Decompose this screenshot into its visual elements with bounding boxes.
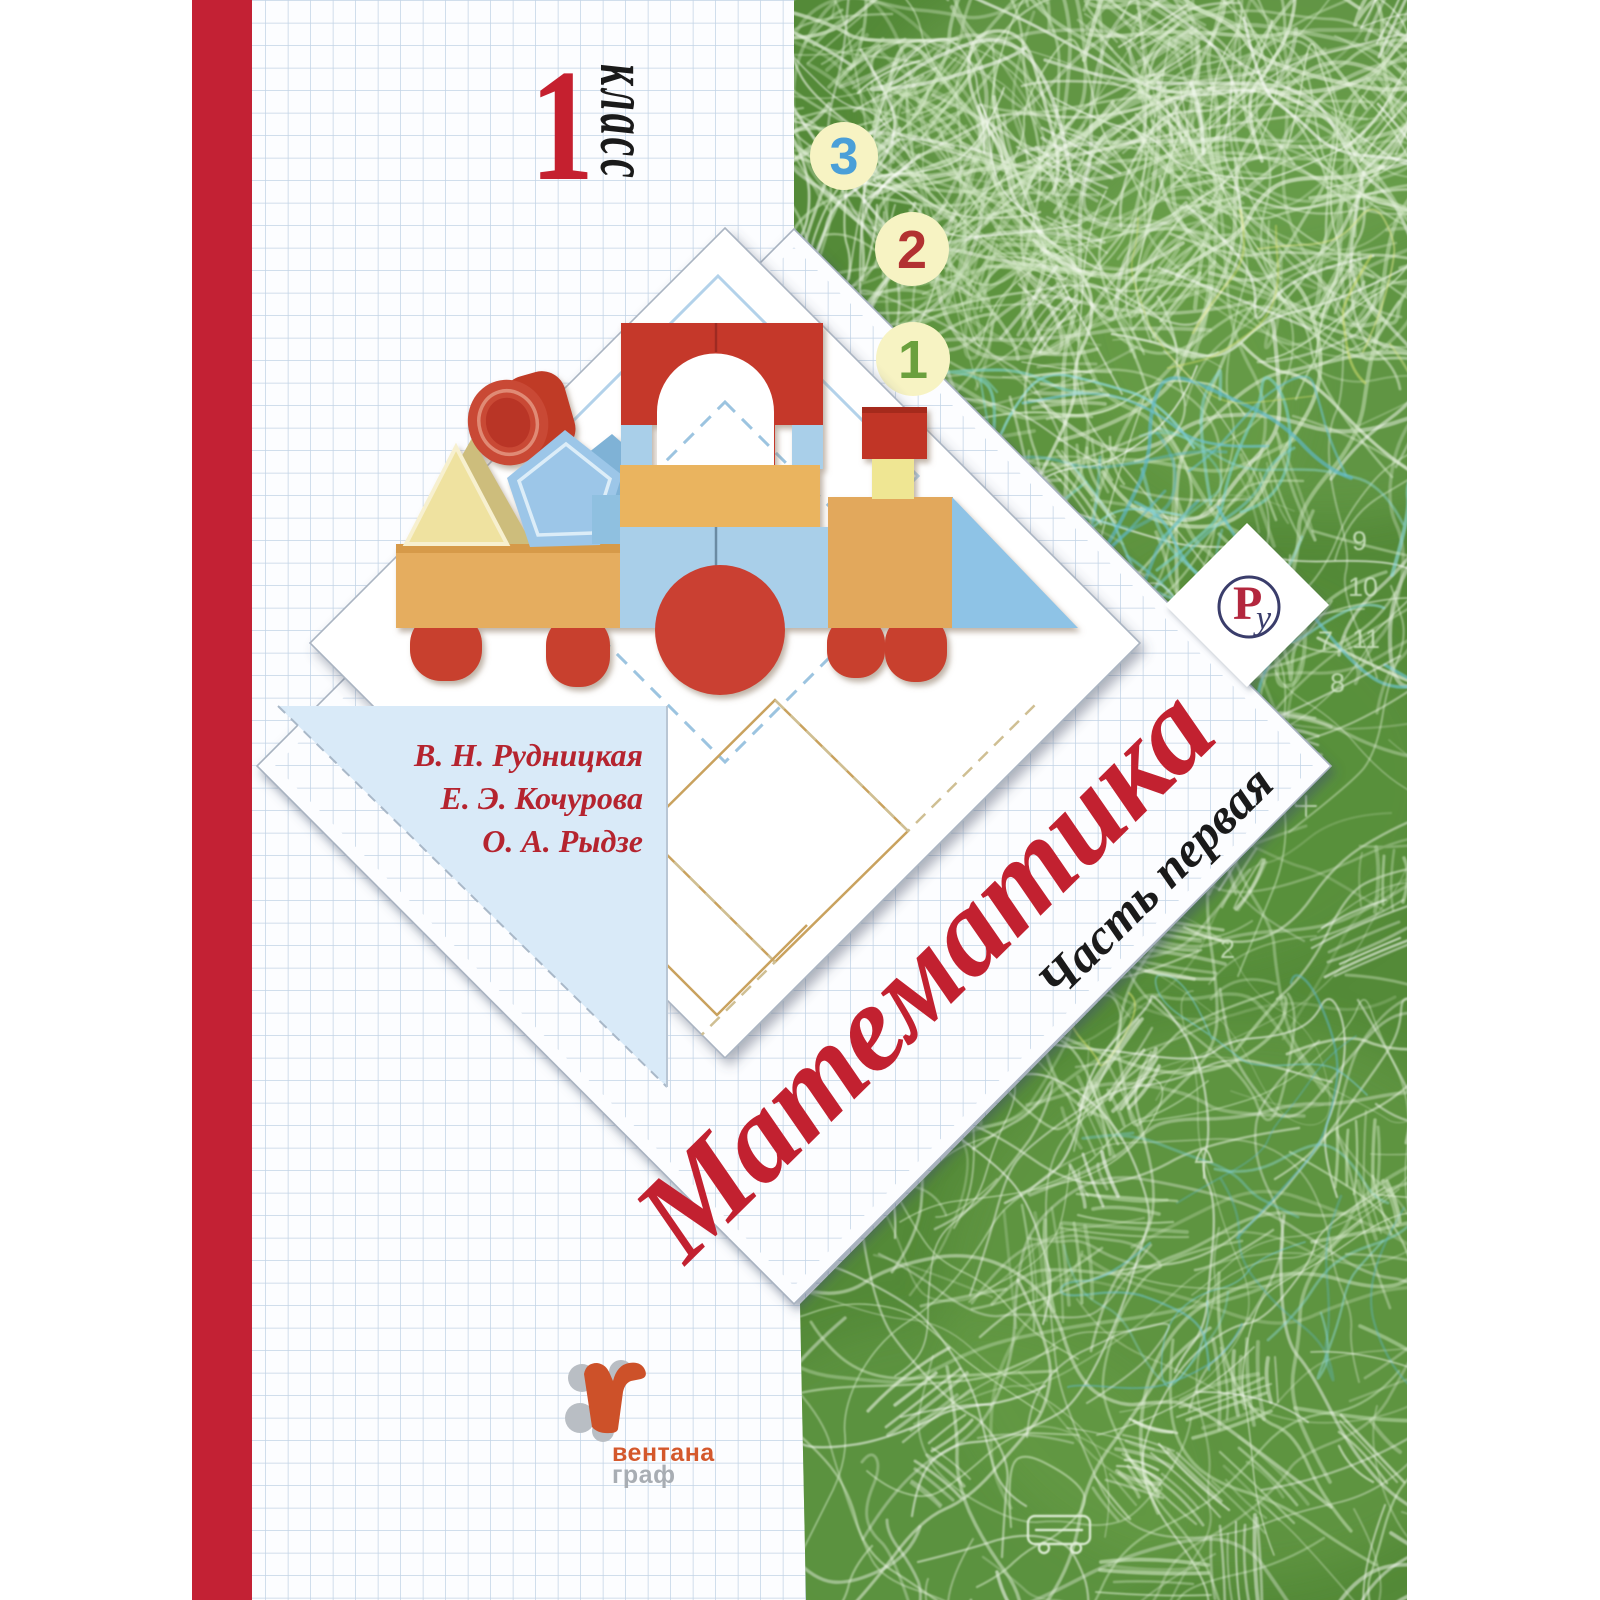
- svg-text:у: у: [1253, 600, 1272, 637]
- svg-text:3: 3: [830, 128, 859, 186]
- svg-text:7: 7: [1318, 626, 1333, 656]
- svg-text:2: 2: [897, 220, 927, 280]
- svg-text:2: 2: [1220, 934, 1235, 964]
- svg-text:8: 8: [1330, 668, 1345, 698]
- svg-text:11: 11: [1352, 624, 1380, 654]
- svg-text:Е. Э. Кочурова: Е. Э. Кочурова: [440, 780, 643, 816]
- svg-text:О. А. Рыдзе: О. А. Рыдзе: [482, 823, 643, 859]
- svg-text:граф: граф: [612, 1461, 675, 1489]
- svg-text:1: 1: [898, 330, 928, 390]
- svg-text:класс: класс: [585, 64, 664, 181]
- svg-text:9: 9: [1352, 526, 1367, 556]
- svg-text:10: 10: [1348, 572, 1378, 602]
- svg-text:В. Н. Рудницкая: В. Н. Рудницкая: [413, 737, 643, 773]
